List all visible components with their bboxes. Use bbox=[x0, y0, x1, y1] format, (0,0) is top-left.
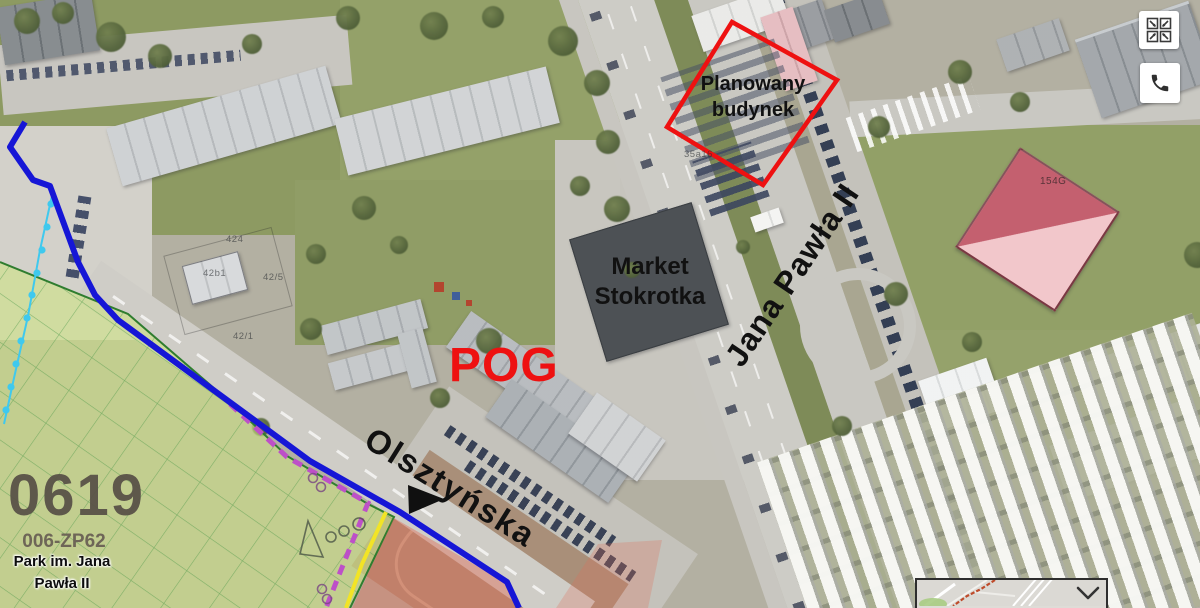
phone-icon bbox=[1149, 72, 1171, 94]
tree bbox=[604, 196, 630, 222]
segments-grid-button[interactable] bbox=[1139, 11, 1179, 49]
tree bbox=[832, 416, 852, 436]
tree bbox=[14, 8, 40, 34]
tree bbox=[420, 12, 448, 40]
boundary-point-symbols bbox=[309, 474, 332, 604]
tree bbox=[1010, 92, 1030, 112]
parcel-label: 424 bbox=[226, 234, 243, 245]
plan-area-number: 0619 bbox=[8, 462, 145, 529]
pog-label: POG bbox=[449, 338, 559, 393]
building-roof bbox=[824, 0, 890, 43]
tree bbox=[962, 332, 982, 352]
parcel-label: 42/5 bbox=[263, 272, 284, 283]
tree bbox=[242, 34, 262, 54]
playground-item bbox=[466, 300, 472, 306]
zone-name-line2: Pawła II bbox=[4, 573, 120, 595]
tree bbox=[336, 6, 360, 30]
tree bbox=[96, 22, 126, 52]
chevron-down-icon[interactable] bbox=[1075, 585, 1101, 603]
segments-grid-icon bbox=[1146, 17, 1172, 43]
map-viewport[interactable]: Planowany budynek Market Stokrotka Jana … bbox=[0, 0, 1200, 608]
tree bbox=[306, 244, 326, 264]
tree bbox=[596, 130, 620, 154]
planned-building-line2: budynek bbox=[688, 97, 818, 123]
tree bbox=[430, 388, 450, 408]
tree bbox=[482, 6, 504, 28]
tree bbox=[736, 240, 750, 254]
tree bbox=[390, 236, 408, 254]
zone-code: 006-ZP62 bbox=[12, 531, 116, 553]
minimap-inset[interactable] bbox=[915, 578, 1108, 608]
market-line2: Stokrotka bbox=[583, 282, 717, 312]
market-stokrotka-label: Market Stokrotka bbox=[583, 252, 717, 312]
tree bbox=[148, 44, 172, 68]
parcel-label: 42/1 bbox=[233, 331, 254, 342]
tree bbox=[300, 318, 322, 340]
tree bbox=[584, 70, 610, 96]
tree bbox=[548, 26, 578, 56]
tree bbox=[868, 116, 890, 138]
playground-item bbox=[434, 282, 444, 292]
planned-building-label: Planowany budynek bbox=[688, 71, 818, 123]
parcel-label: 42b1 bbox=[203, 268, 226, 279]
tree bbox=[948, 60, 972, 84]
park-symbols bbox=[300, 518, 365, 557]
tree bbox=[570, 176, 590, 196]
tree bbox=[884, 282, 908, 306]
tree bbox=[352, 196, 376, 220]
parcel-label: 154G bbox=[1040, 176, 1066, 187]
parcel-label: 35a16 bbox=[684, 149, 713, 160]
planned-building-line1: Planowany bbox=[688, 71, 818, 97]
zone-name-line1: Park im. Jana bbox=[4, 551, 120, 573]
playground-item bbox=[452, 292, 460, 300]
tree bbox=[52, 2, 74, 24]
building-roof bbox=[996, 18, 1069, 72]
market-line1: Market bbox=[583, 252, 717, 282]
phone-button[interactable] bbox=[1140, 63, 1180, 103]
zone-name: Park im. Jana Pawła II bbox=[4, 551, 120, 595]
tree bbox=[252, 418, 270, 436]
